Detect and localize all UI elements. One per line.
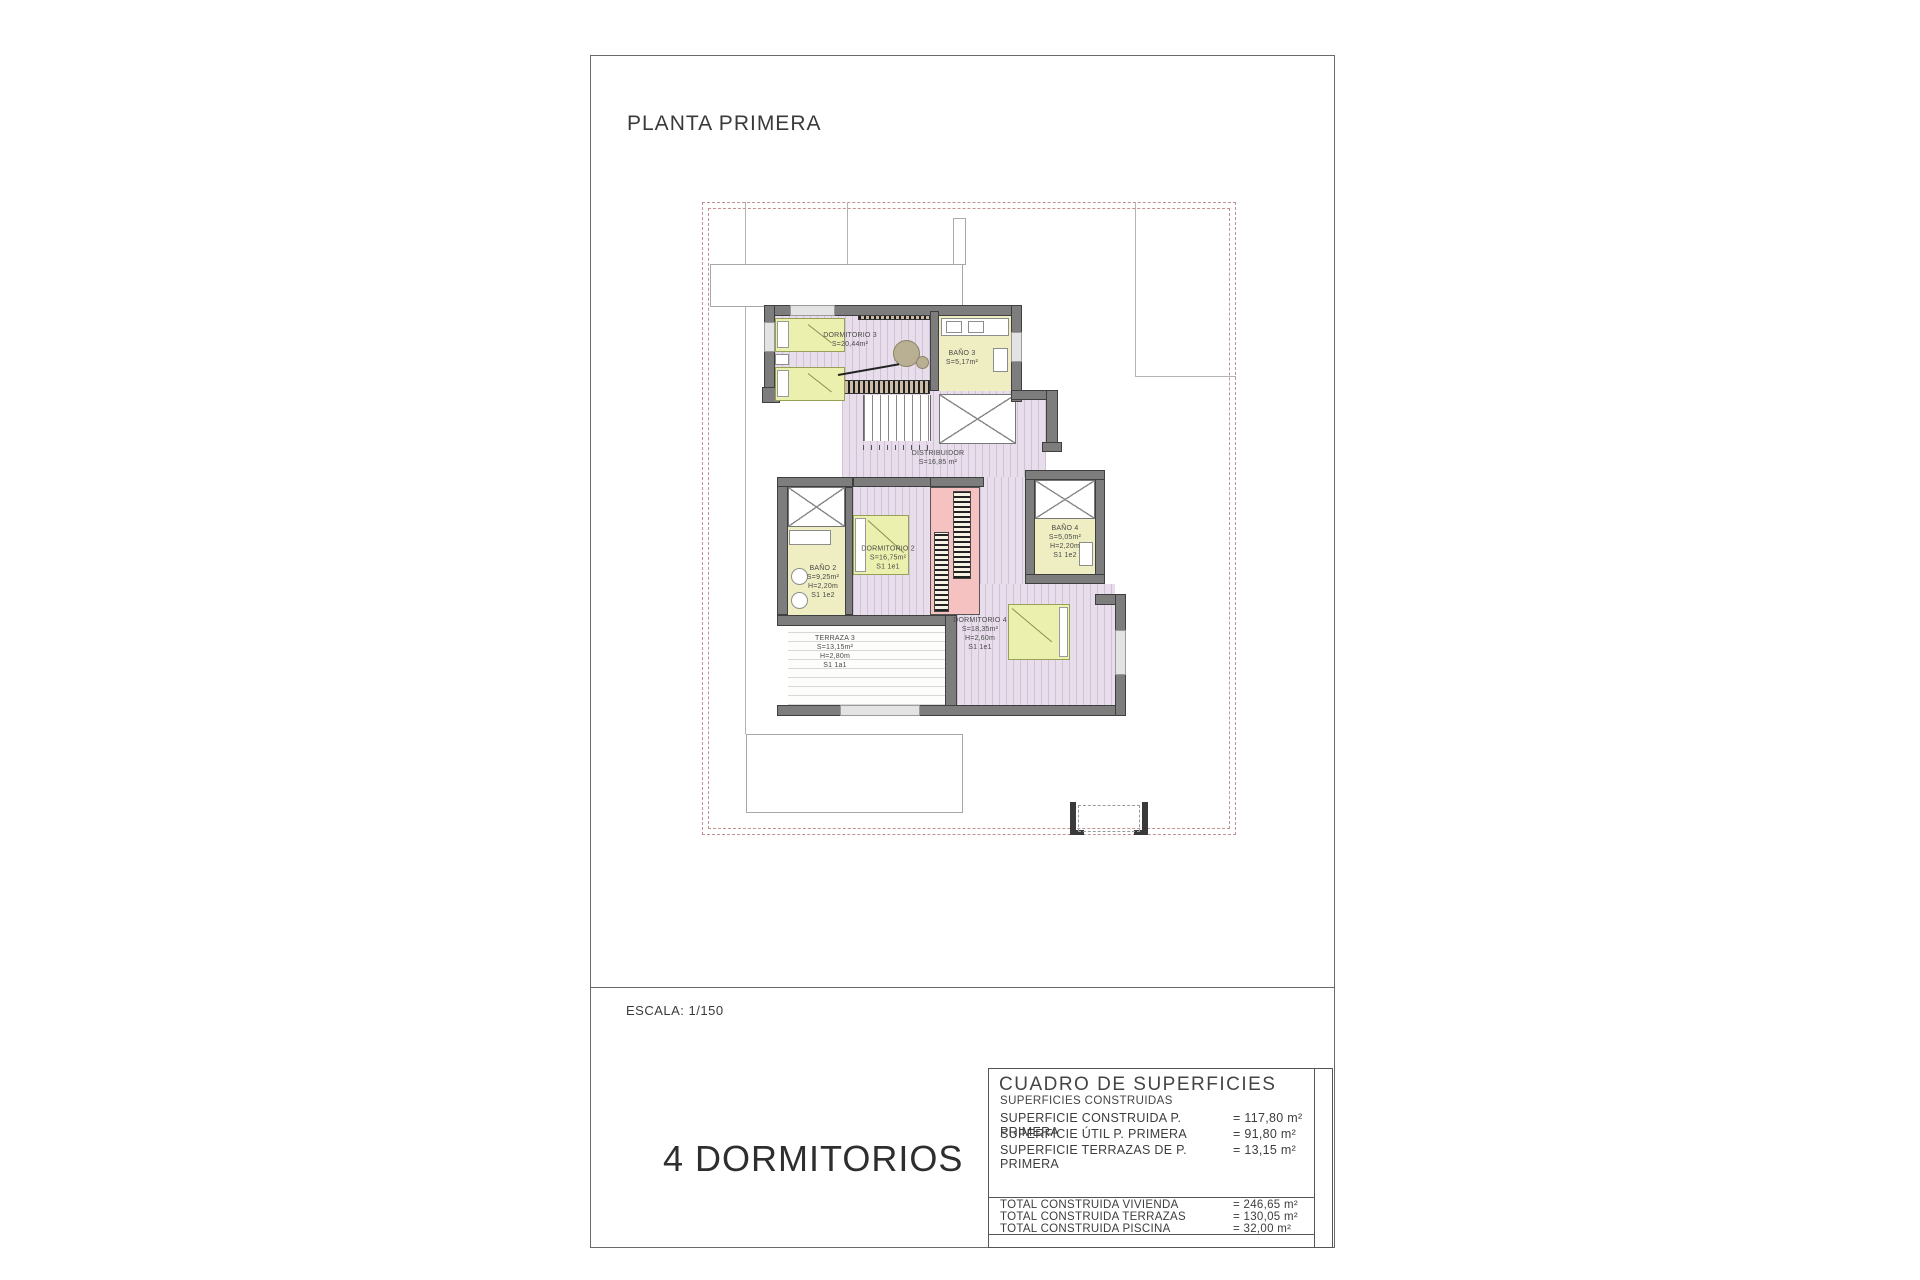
room-name: BAÑO 2 — [807, 564, 839, 573]
bed-pillow — [1059, 607, 1068, 657]
wall-segment — [1025, 470, 1035, 584]
reference-line — [847, 202, 848, 264]
stair-treads — [863, 395, 931, 441]
room-ref: S1 1a1 — [815, 661, 855, 670]
wall-segment — [1025, 470, 1105, 480]
room-name: BAÑO 4 — [1049, 524, 1081, 533]
room-height: H=2,60m — [953, 634, 1007, 643]
room-height: H=2,20m — [807, 582, 839, 591]
row-label: SUPERFICIE TERRAZAS DE P. PRIMERA — [1000, 1143, 1233, 1171]
row-label: SUPERFICIE ÚTIL P. PRIMERA — [1000, 1127, 1233, 1141]
row-value: = 246,65 m² — [1233, 1199, 1306, 1211]
wall-segment — [845, 487, 853, 615]
nightstand — [775, 354, 789, 365]
wall-segment — [777, 615, 957, 626]
row-value: = 13,15 m² — [1233, 1143, 1306, 1171]
wall-segment — [930, 477, 984, 487]
room-label-dormitorio2: DORMITORIO 2 S=16,75m² S1 1e1 — [861, 544, 915, 571]
surfaces-table-subtitle: SUPERFICIES CONSTRUIDAS — [1000, 1095, 1173, 1107]
room-label-terraza3: TERRAZA 3 S=13,15m² H=2,80m S1 1a1 — [815, 634, 855, 670]
window — [1011, 332, 1022, 362]
wall-segment — [1025, 574, 1105, 584]
room-area: S=9,25m² — [807, 573, 839, 582]
wardrobe-box — [939, 394, 1016, 444]
corridor-floor — [980, 477, 1025, 584]
window — [764, 322, 775, 352]
room-ref: S1 1e1 — [953, 643, 1007, 652]
plant — [916, 356, 929, 369]
reference-line — [1135, 202, 1136, 376]
chimney-outline — [953, 218, 966, 265]
row-label: TOTAL CONSTRUIDA TERRAZAS — [1000, 1211, 1233, 1223]
sink-counter — [789, 530, 831, 545]
room-area: S=5,17m² — [946, 358, 978, 367]
room-area: S=5,05m² — [1049, 533, 1081, 542]
roof-overhang-outline — [710, 264, 963, 307]
wall-segment — [1095, 470, 1105, 584]
wall-pillar — [1042, 442, 1062, 452]
wall-segment — [777, 477, 853, 487]
window — [790, 305, 835, 316]
room-label-bano4: BAÑO 4 S=5,05m² H=2,20m S1 1e2 — [1049, 524, 1081, 560]
room-height: H=2,20m — [1049, 542, 1081, 551]
wall-segment — [777, 477, 788, 615]
reference-line — [1135, 376, 1236, 377]
room-floor-terraza3 — [788, 615, 945, 705]
room-label-dormitorio4: DORMITORIO 4 S=18,35m² H=2,60m S1 1e1 — [953, 616, 1007, 652]
total-row: TOTAL CONSTRUIDA TERRAZAS = 130,05 m² — [1000, 1211, 1306, 1223]
room-area: S=18,35m² — [953, 625, 1007, 634]
room-area: S=16,75m² — [861, 553, 915, 562]
wardrobe-hatch — [837, 380, 930, 394]
table-row: SUPERFICIE ÚTIL P. PRIMERA = 91,80 m² — [1000, 1127, 1306, 1141]
sink-bowl — [946, 321, 962, 333]
bed-pillow — [777, 370, 789, 397]
bed-pillow — [777, 321, 789, 348]
totals-box: TOTAL CONSTRUIDA VIVIENDA = 246,65 m² TO… — [989, 1197, 1315, 1235]
room-label-distribuidor: DISTRIBUIDOR S=16,85 m² — [912, 449, 965, 467]
lower-terrace-outline — [746, 734, 963, 813]
wardrobe-box — [1035, 480, 1095, 519]
wall-segment — [853, 477, 933, 487]
toilet — [993, 348, 1008, 372]
row-value: = 32,00 m² — [1233, 1223, 1306, 1235]
scale-label: ESCALA: 1/150 — [626, 1003, 724, 1018]
table-row: SUPERFICIE TERRAZAS DE P. PRIMERA = 13,1… — [1000, 1143, 1306, 1171]
total-row: TOTAL CONSTRUIDA PISCINA = 32,00 m² — [1000, 1223, 1306, 1235]
stair-run — [953, 491, 971, 579]
surfaces-table: CUADRO DE SUPERFICIES SUPERFICIES CONSTR… — [988, 1068, 1333, 1248]
bidet — [791, 592, 808, 609]
room-name: DISTRIBUIDOR — [912, 449, 965, 458]
room-name: DORMITORIO 4 — [953, 616, 1007, 625]
room-height: H=2,80m — [815, 652, 855, 661]
toilet — [1079, 542, 1093, 566]
room-label-bano3: BAÑO 3 S=5,17m² — [946, 349, 978, 367]
window — [840, 705, 920, 716]
bedrooms-label: 4 DORMITORIOS — [663, 1138, 963, 1180]
row-label: TOTAL CONSTRUIDA PISCINA — [1000, 1223, 1233, 1235]
wall-segment — [930, 311, 939, 391]
room-label-bano2: BAÑO 2 S=9,25m² H=2,20m S1 1e2 — [807, 564, 839, 600]
wall-segment — [777, 705, 1126, 716]
room-area: S=13,15m² — [815, 643, 855, 652]
row-label: TOTAL CONSTRUIDA VIVIENDA — [1000, 1199, 1233, 1211]
window — [1115, 630, 1126, 675]
wall-segment — [1046, 390, 1058, 448]
room-name: DORMITORIO 3 — [823, 331, 877, 340]
room-ref: S1 1e2 — [1049, 551, 1081, 560]
room-label-dormitorio3: DORMITORIO 3 S=20,44m² — [823, 331, 877, 349]
wardrobe-box — [788, 487, 845, 527]
room-area: S=16,85 m² — [912, 458, 965, 467]
room-name: DORMITORIO 2 — [861, 544, 915, 553]
row-value: = 130,05 m² — [1233, 1211, 1306, 1223]
gate-opening — [1078, 805, 1140, 832]
room-ref: S1 1e2 — [807, 591, 839, 600]
floor-plan: DORMITORIO 3 S=20,44m² BAÑO 3 S=5,17m² D… — [690, 190, 1250, 850]
room-ref: S1 1e1 — [861, 563, 915, 572]
toilet — [791, 568, 808, 585]
room-name: TERRAZA 3 — [815, 634, 855, 643]
surfaces-table-title: CUADRO DE SUPERFICIES — [999, 1074, 1276, 1096]
row-value: = 91,80 m² — [1233, 1127, 1306, 1141]
room-name: BAÑO 3 — [946, 349, 978, 358]
total-row: TOTAL CONSTRUIDA VIVIENDA = 246,65 m² — [1000, 1199, 1306, 1211]
room-area: S=20,44m² — [823, 340, 877, 349]
page-title: PLANTA PRIMERA — [627, 112, 822, 136]
sink-bowl — [968, 321, 984, 333]
stair-run — [934, 532, 949, 612]
title-block-divider — [590, 987, 1335, 988]
